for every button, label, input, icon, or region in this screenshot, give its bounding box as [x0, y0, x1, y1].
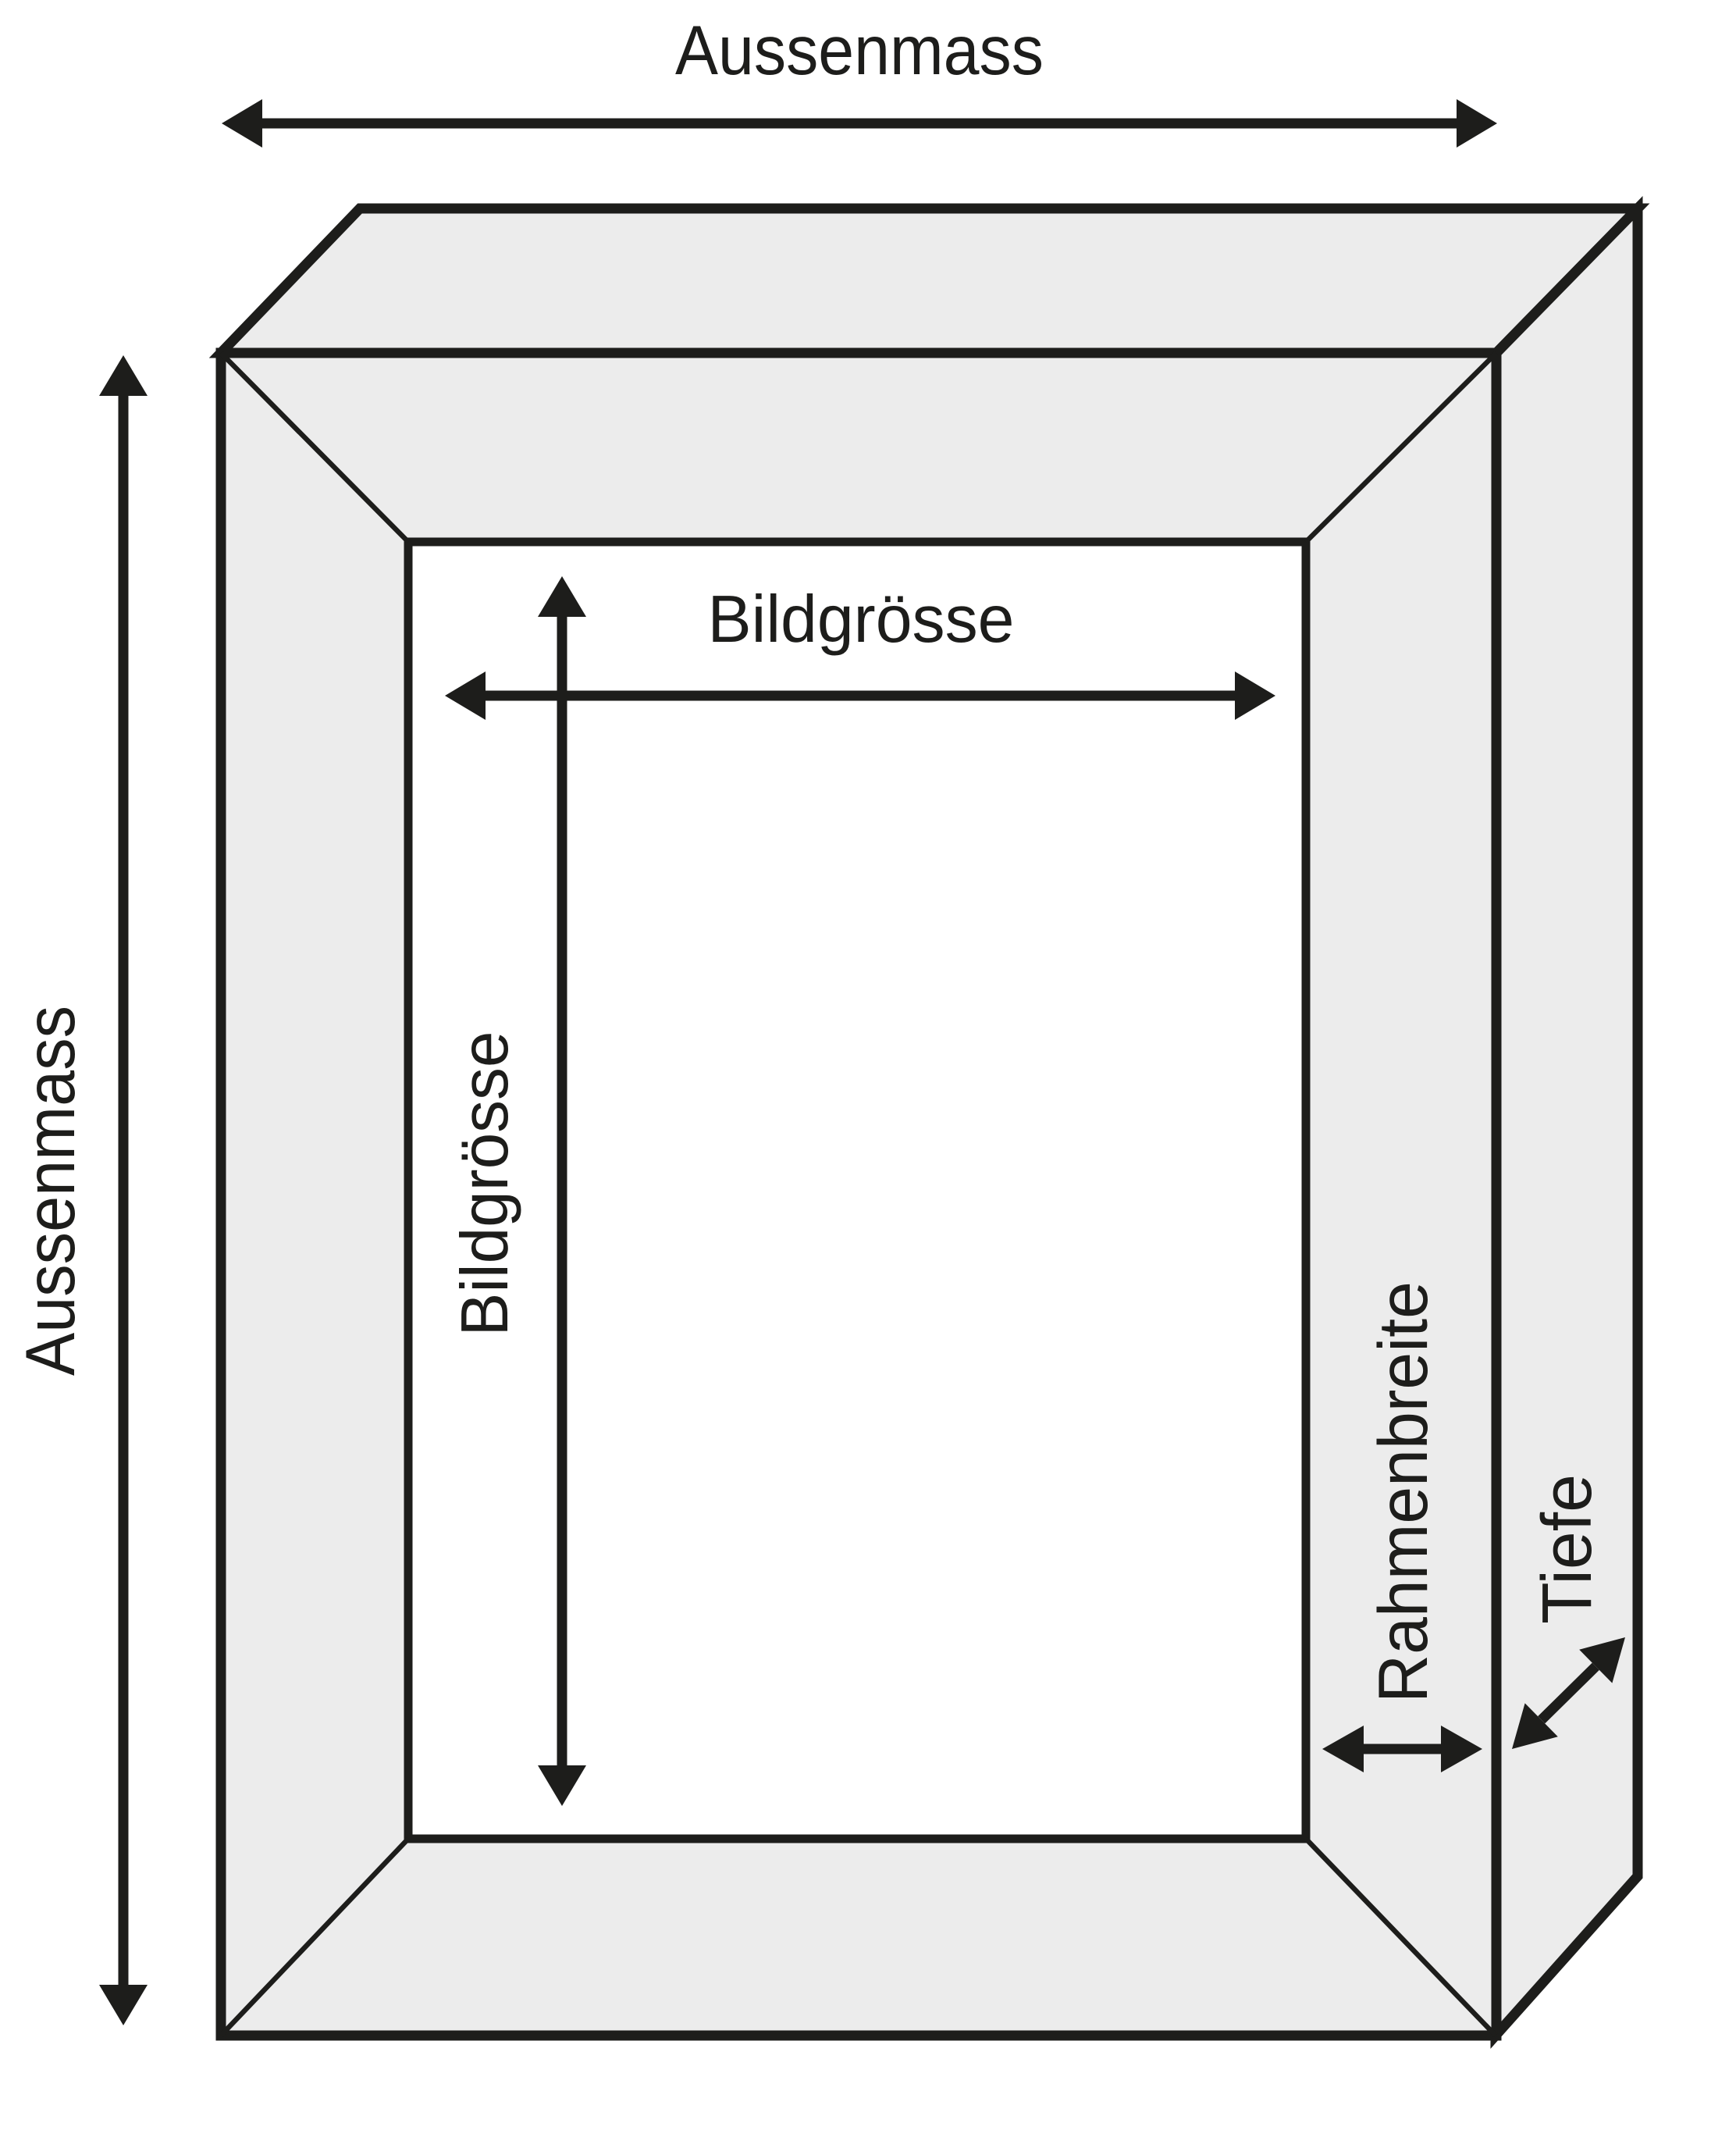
svg-text:Rahmenbreite: Rahmenbreite [1364, 1281, 1442, 1703]
svg-text:Aussenmass: Aussenmass [675, 11, 1044, 89]
svg-text:Bildgrösse: Bildgrösse [448, 1031, 522, 1337]
svg-text:Tiefe: Tiefe [1528, 1474, 1606, 1624]
svg-text:Aussenmass: Aussenmass [11, 1006, 89, 1376]
svg-text:Bildgrösse: Bildgrösse [708, 582, 1015, 657]
